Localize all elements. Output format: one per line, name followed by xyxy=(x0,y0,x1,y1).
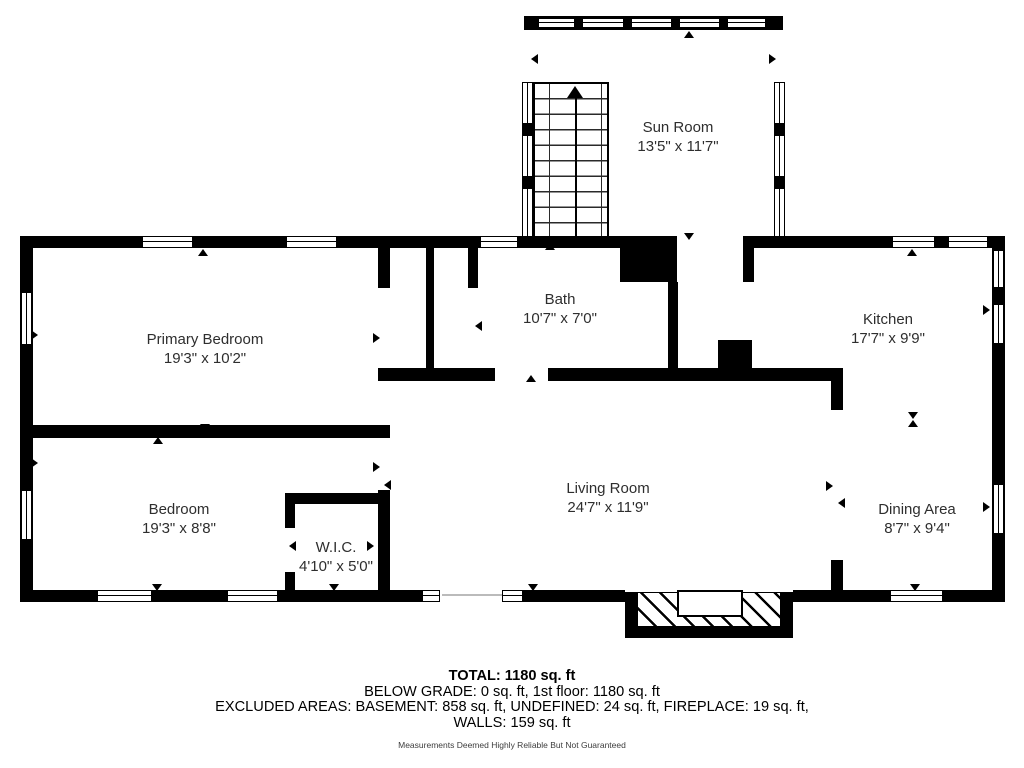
stair-rail xyxy=(549,84,550,238)
window-symbol xyxy=(892,236,935,248)
wall-outer-left xyxy=(20,236,33,602)
wall-bath-right xyxy=(668,282,678,380)
window-mullion xyxy=(574,18,583,28)
door-jamb-symbol xyxy=(422,590,440,602)
stairs-up-arrow-icon xyxy=(567,86,583,98)
door-arrow-icon xyxy=(31,458,38,468)
door-arrow-icon xyxy=(684,233,694,240)
room-dims: 17'7" x 9'9" xyxy=(851,329,925,348)
dimension-tick-icon xyxy=(198,249,208,256)
window-mullion xyxy=(623,18,632,28)
room-name: Primary Bedroom xyxy=(147,330,264,349)
stair-rail xyxy=(601,84,602,238)
room-name: Bedroom xyxy=(142,500,216,519)
room-label-dining-area: Dining Area 8'7" x 9'4" xyxy=(878,500,956,538)
door-arrow-icon xyxy=(373,462,380,472)
wall-segment xyxy=(774,176,785,189)
wall-wic-top xyxy=(285,493,378,504)
window-symbol xyxy=(538,18,766,28)
door-arrow-icon xyxy=(983,305,990,315)
window-symbol xyxy=(522,82,533,240)
wall-closet-left xyxy=(378,247,390,288)
door-arrow-icon xyxy=(526,375,536,382)
window-symbol xyxy=(890,590,943,602)
door-jamb-symbol xyxy=(502,590,523,602)
wall-living-top xyxy=(378,368,843,381)
window-symbol xyxy=(774,82,785,240)
room-name: Sun Room xyxy=(637,118,718,137)
door-arrow-icon xyxy=(475,321,482,331)
wall-wic-right xyxy=(378,490,390,602)
wall-kitchen-stub xyxy=(743,247,754,282)
room-name: W.I.C. xyxy=(299,538,373,557)
fireplace-wall xyxy=(625,627,793,638)
summary-excluded-areas: EXCLUDED AREAS: BASEMENT: 858 sq. ft, UN… xyxy=(0,700,1024,716)
door-arrow-icon xyxy=(373,333,380,343)
wall-segment xyxy=(522,176,533,189)
wall-chimney-block xyxy=(620,247,677,282)
window-mullion xyxy=(671,18,680,28)
summary-total: TOTAL: 1180 sq. ft xyxy=(0,669,1024,685)
wall-outer-right xyxy=(992,236,1005,602)
door-arrow-icon xyxy=(838,498,845,508)
room-dims: 24'7" x 11'9" xyxy=(566,498,649,517)
room-dims: 19'3" x 8'8" xyxy=(142,519,216,538)
staircase xyxy=(533,82,609,240)
window-symbol xyxy=(993,304,1004,344)
window-symbol xyxy=(21,490,32,540)
firebox xyxy=(677,590,743,617)
window-symbol xyxy=(993,250,1004,288)
wall-dining-top-stub xyxy=(831,378,843,410)
dimension-tick-icon xyxy=(910,584,920,591)
room-name: Living Room xyxy=(566,479,649,498)
dimension-tick-icon xyxy=(153,437,163,444)
fireplace xyxy=(625,590,793,638)
dimension-tick-icon xyxy=(200,424,210,431)
dimension-tick-icon xyxy=(907,249,917,256)
room-label-primary-bedroom: Primary Bedroom 19'3" x 10'2" xyxy=(147,330,264,368)
door-arrow-icon xyxy=(384,480,391,490)
floor-plan: Sun Room 13'5" x 11'7" Primary Bedroom 1… xyxy=(0,0,1024,768)
room-dims: 4'10" x 5'0" xyxy=(299,557,373,576)
room-name: Kitchen xyxy=(851,310,925,329)
area-summary: TOTAL: 1180 sq. ft BELOW GRADE: 0 sq. ft… xyxy=(0,669,1024,754)
door-arrow-icon xyxy=(289,541,296,551)
dimension-tick-icon xyxy=(152,584,162,591)
room-label-sun-room: Sun Room 13'5" x 11'7" xyxy=(637,118,718,156)
door-arrow-icon xyxy=(769,54,776,64)
wall-kitchen-chimney xyxy=(718,340,752,371)
dimension-tick-icon xyxy=(528,584,538,591)
dimension-tick-icon xyxy=(908,412,918,419)
room-dims: 10'7" x 7'0" xyxy=(523,309,597,328)
summary-walls: WALLS: 159 sq. ft xyxy=(0,716,1024,732)
room-label-living-room: Living Room 24'7" x 11'9" xyxy=(566,479,649,517)
wall-segment xyxy=(774,123,785,136)
wall-dining-bottom-stub xyxy=(831,560,843,602)
room-dims: 8'7" x 9'4" xyxy=(878,519,956,538)
room-label-bath: Bath 10'7" x 7'0" xyxy=(523,290,597,328)
window-symbol xyxy=(993,484,1004,534)
window-symbol xyxy=(97,590,152,602)
summary-disclaimer: Measurements Deemed Highly Reliable But … xyxy=(0,738,1024,754)
wall-segment xyxy=(522,123,533,136)
door-arrow-icon xyxy=(31,330,38,340)
window-symbol xyxy=(142,236,193,248)
dimension-tick-icon xyxy=(684,31,694,38)
room-name: Dining Area xyxy=(878,500,956,519)
window-symbol xyxy=(227,590,278,602)
room-dims: 19'3" x 10'2" xyxy=(147,349,264,368)
window-symbol xyxy=(286,236,337,248)
room-name: Bath xyxy=(523,290,597,309)
door-arrow-icon xyxy=(531,54,538,64)
dimension-tick-icon xyxy=(329,584,339,591)
room-label-wic: W.I.C. 4'10" x 5'0" xyxy=(299,538,373,576)
summary-below-grade: BELOW GRADE: 0 sq. ft, 1st floor: 1180 s… xyxy=(0,685,1024,701)
stair-direction-line xyxy=(575,96,577,238)
door-opening-bath xyxy=(495,368,548,381)
door-arrow-icon xyxy=(545,243,555,250)
wall-closet-middle xyxy=(426,247,434,368)
window-symbol xyxy=(480,236,518,248)
door-arrow-icon xyxy=(826,481,833,491)
window-symbol xyxy=(948,236,988,248)
sliding-door-opening xyxy=(440,590,502,602)
window-mullion xyxy=(719,18,728,28)
sliding-door-track xyxy=(442,594,502,596)
dimension-tick-icon xyxy=(908,420,918,427)
room-dims: 13'5" x 11'7" xyxy=(637,137,718,156)
wall-closet-right xyxy=(468,247,478,288)
room-label-kitchen: Kitchen 17'7" x 9'9" xyxy=(851,310,925,348)
door-arrow-icon xyxy=(983,502,990,512)
room-label-bedroom: Bedroom 19'3" x 8'8" xyxy=(142,500,216,538)
